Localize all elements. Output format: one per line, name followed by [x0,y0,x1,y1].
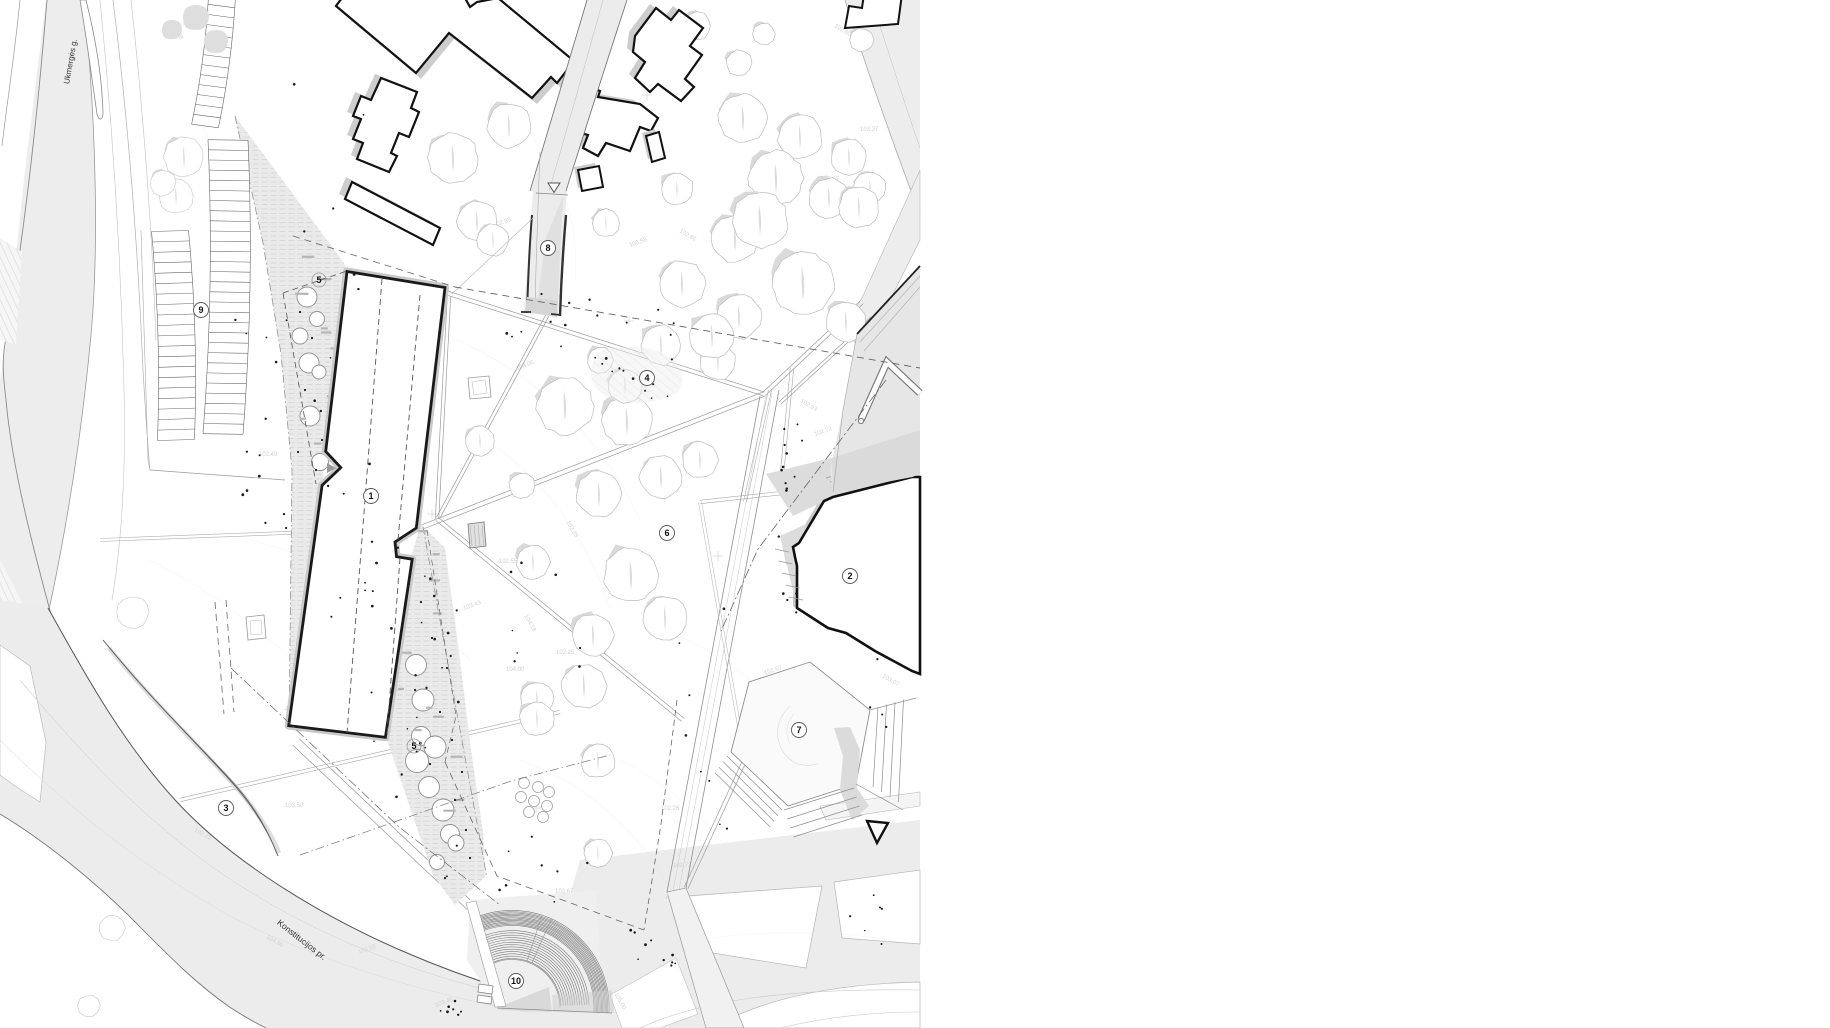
svg-text:102.72: 102.72 [673,863,692,869]
svg-text:102.25: 102.25 [556,650,575,656]
svg-text:8: 8 [545,243,550,253]
svg-text:7: 7 [796,725,801,735]
svg-text:5: 5 [316,275,321,285]
svg-text:103.27: 103.27 [860,127,879,133]
svg-text:103.50: 103.50 [285,803,304,809]
svg-text:6: 6 [664,528,669,538]
svg-text:102.49: 102.49 [259,452,278,458]
svg-text:3: 3 [223,803,228,813]
svg-text:4: 4 [644,373,649,383]
svg-text:102.55: 102.55 [499,559,518,565]
svg-text:1: 1 [368,491,373,501]
svg-text:102.26: 102.26 [661,806,680,812]
svg-text:10: 10 [511,976,521,986]
svg-text:5: 5 [411,741,416,751]
svg-text:104.00: 104.00 [506,667,525,673]
svg-text:2: 2 [847,571,852,581]
svg-text:9: 9 [198,305,203,315]
